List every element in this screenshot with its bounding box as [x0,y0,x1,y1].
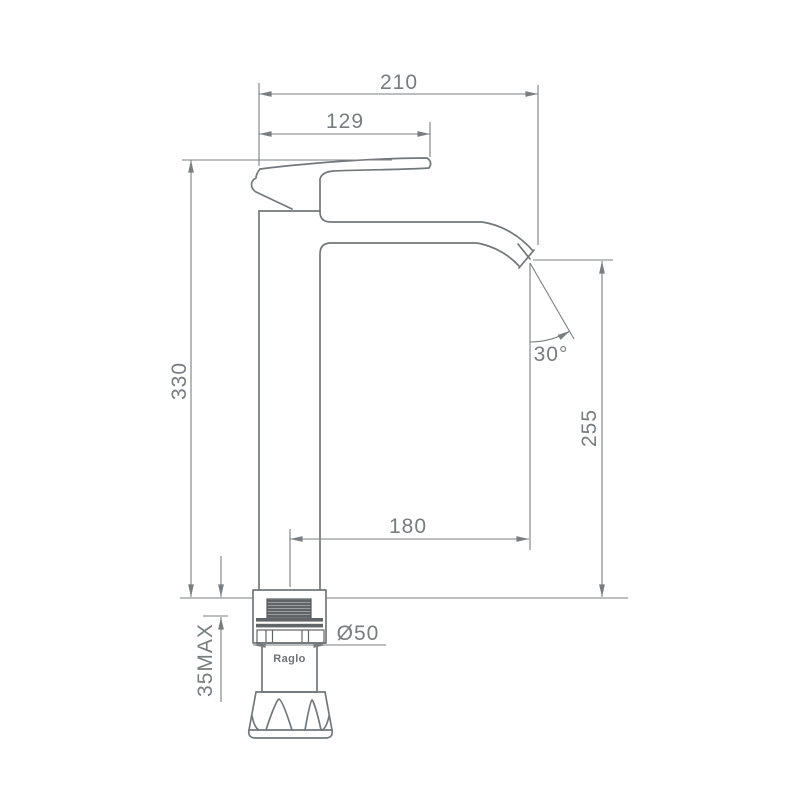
dim-180-label: 180 [389,515,427,538]
dim-330-label: 330 [168,362,191,400]
faucet-dimension-drawing: Raglo 210 129 330 [0,0,800,800]
thread-section [267,599,311,618]
dimension-180: 180 [290,515,529,587]
brand-label: Raglo [273,653,306,665]
washer-lower [256,624,323,628]
dimension-255: 255 [533,260,613,597]
handle-front-outline [252,169,293,209]
dimension-35max: 35MAX [194,556,228,702]
mounting-nut-arch-right [305,700,321,730]
washer-upper [256,618,323,622]
shank-body-rect [262,643,317,692]
mounting-nut-bottom-bar [249,730,333,738]
lock-nut-rect [257,630,324,643]
dim-35max-label: 35MAX [194,623,217,697]
handle-lever-and-spout-outer-outline [260,158,533,251]
faucet-outline: Raglo [249,158,534,738]
angle-slant-line [530,263,574,339]
dimension-330: 330 [168,160,392,597]
mounting-nut-edge-arc-right [322,716,329,730]
dim-129-label: 129 [326,110,364,133]
technical-drawing-page: Raglo 210 129 330 [0,0,800,800]
dimension-129: 129 [259,110,430,157]
dim-255-label: 255 [578,409,601,447]
mounting-nut [249,692,333,738]
angle-30-label: 30° [534,343,569,366]
mounting-nut-edge-arc-left [252,716,259,730]
angle-arc [530,331,570,342]
dim-50-label: Ø50 [337,622,380,645]
dim-210-label: 210 [380,71,418,94]
mounting-nut-arch-left [266,699,292,730]
base-escutcheon [253,590,326,643]
dimension-angle-30: 30° [530,263,574,550]
